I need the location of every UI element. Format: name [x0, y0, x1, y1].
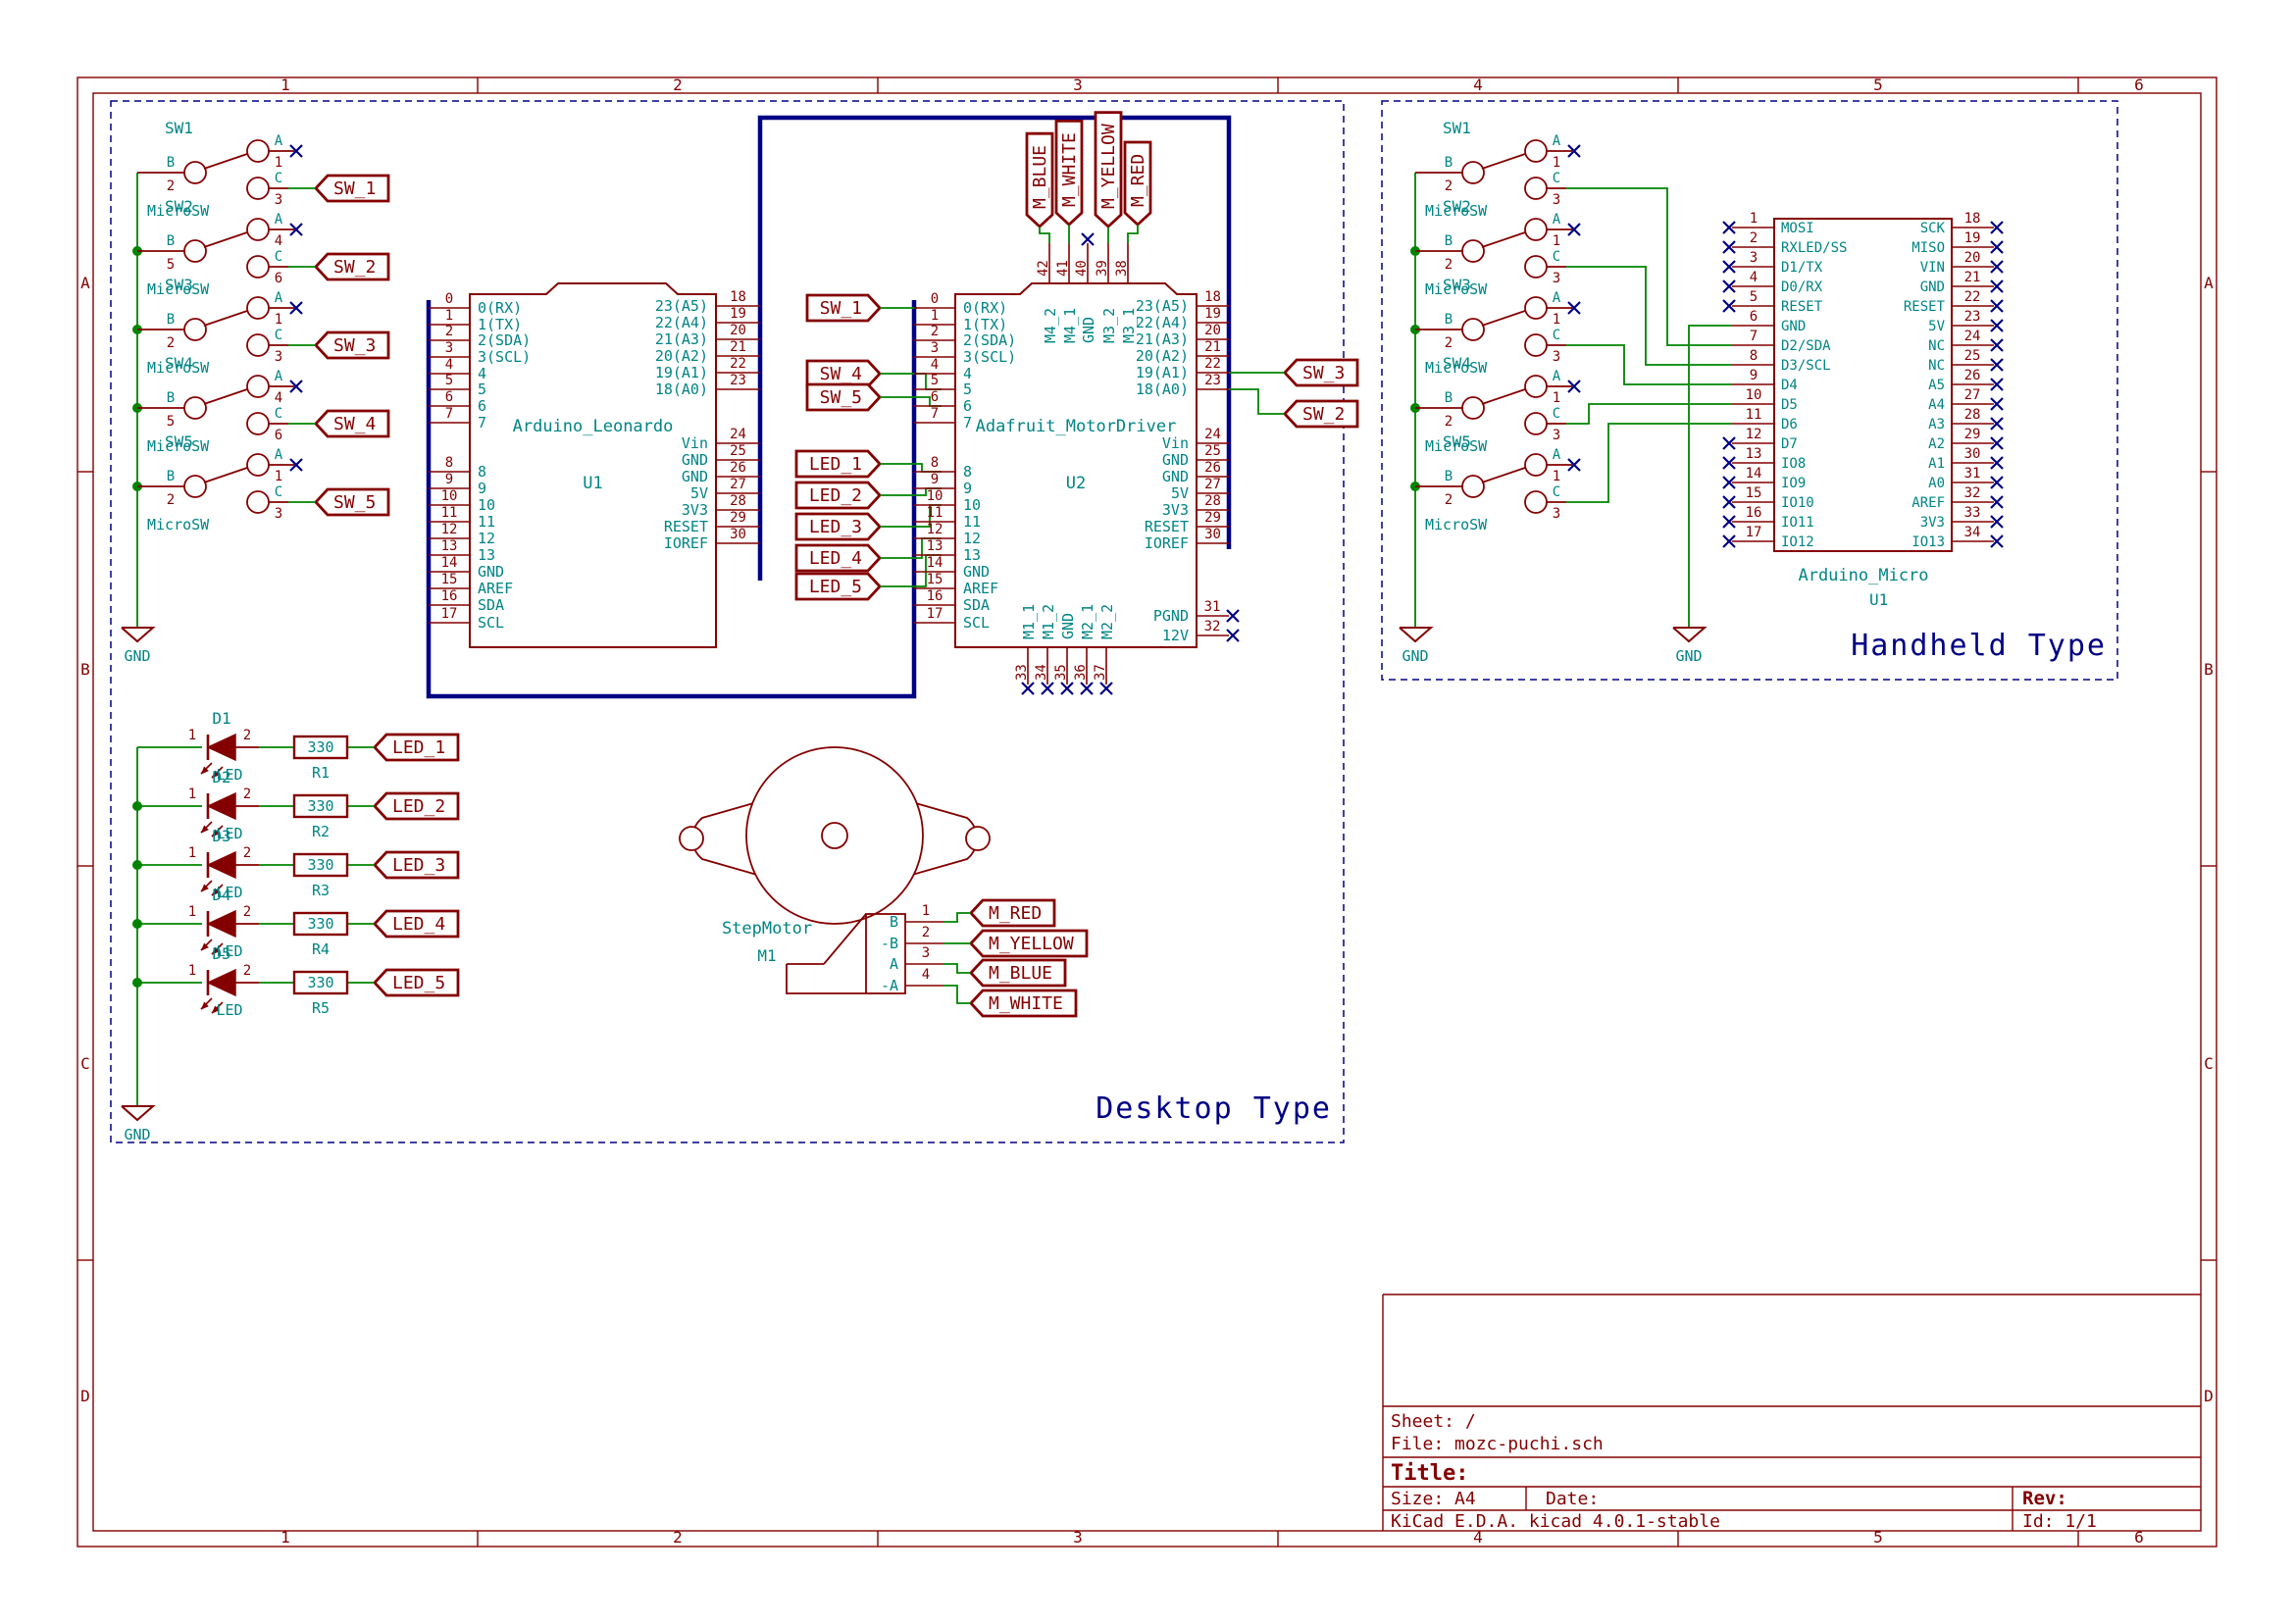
pin-number: 22 — [1964, 289, 1981, 305]
pin-name: 5V — [1171, 484, 1189, 502]
pin-name: 7 — [478, 414, 486, 431]
schematic-sheet: 112233445566AABBCCDD Sheet: / File: mozc… — [0, 0, 2294, 1624]
pin-name: IO11 — [1781, 515, 1814, 531]
pin-number: 10 — [1746, 387, 1762, 403]
switch-pin-letter: B — [167, 312, 175, 328]
pin-number: 17 — [1746, 525, 1762, 540]
pin-name: 5 — [478, 381, 486, 398]
global-label-led[interactable]: LED_4 — [375, 911, 458, 937]
global-label-led[interactable]: LED_5 — [375, 970, 458, 995]
gnd-label: GND — [124, 647, 150, 665]
switch-pin-number: 2 — [1445, 257, 1453, 273]
pin-number: 31 — [1964, 466, 1981, 482]
switch-pin-number: 1 — [1553, 390, 1560, 406]
global-label-text: LED_4 — [392, 914, 445, 935]
pin-name: 10 — [478, 496, 495, 514]
pin-number: 12 — [441, 522, 458, 537]
pin-number: 2 — [931, 324, 939, 339]
global-label-sw[interactable]: SW_5 — [316, 489, 388, 515]
pin-name: SDA — [963, 596, 990, 614]
pin-name: A — [890, 955, 898, 973]
switch-contact — [1525, 140, 1547, 162]
switch-pin-number: 1 — [1553, 155, 1560, 171]
global-label-text: SW_3 — [1302, 363, 1345, 383]
switch-ref: SW4 — [165, 354, 193, 373]
pin-number: 7 — [1750, 329, 1758, 344]
global-label[interactable]: M_BLUE — [1027, 133, 1052, 227]
global-label-text: LED_5 — [392, 973, 445, 993]
pin-name: 18(A0) — [1136, 381, 1189, 398]
pin-number: 23 — [1204, 373, 1221, 388]
switch-pin-letter: A — [275, 212, 283, 228]
pin-number: 23 — [1964, 309, 1981, 325]
switch-pin-number: 3 — [1553, 192, 1560, 208]
switch-pin-number: 3 — [1553, 506, 1560, 522]
switch-ref: SW4 — [1443, 354, 1471, 373]
led-ref: D5 — [212, 944, 230, 963]
pin-name: M3_2 — [1100, 308, 1118, 343]
pin-number: 26 — [1964, 368, 1981, 383]
led-ref: D2 — [212, 768, 230, 787]
pin-number: 33 — [1014, 664, 1030, 681]
pin-name: 20(A2) — [1136, 347, 1189, 365]
switch-ref: SW1 — [1443, 119, 1471, 137]
switch-pin-number: 6 — [275, 271, 282, 286]
switch-contact — [1525, 297, 1547, 319]
pin-name: 5 — [963, 381, 972, 398]
switch-ref: SW2 — [1443, 197, 1471, 216]
pin-name: 7 — [963, 414, 972, 431]
pin-number: 6 — [1750, 309, 1758, 325]
pin-number: 28 — [730, 493, 746, 509]
resistor-ref: R1 — [312, 764, 330, 782]
pin-number: 34 — [1034, 664, 1049, 681]
pin-name: 3V3 — [1162, 501, 1189, 519]
pin-name: 23(A5) — [1136, 297, 1189, 315]
pin-name: 22(A4) — [655, 314, 708, 331]
pin-number: 9 — [931, 472, 939, 487]
pin-name: Vin — [682, 434, 708, 452]
pin-number: 5 — [1750, 289, 1758, 305]
pin-name: M1_1 — [1020, 604, 1038, 639]
switch-contact — [247, 297, 269, 319]
frame-col-label: 5 — [1873, 1528, 1883, 1547]
pin-name: NC — [1928, 338, 1945, 354]
global-label[interactable]: LED_4 — [796, 545, 880, 571]
global-label[interactable]: SW_5 — [807, 384, 880, 410]
pin-number: 7 — [445, 406, 453, 422]
global-label-led[interactable]: LED_2 — [375, 793, 458, 819]
switch-pin-letter: B — [167, 469, 175, 484]
chip-name: StepMotor — [722, 919, 812, 939]
switch-pin-letter: A — [275, 290, 283, 306]
pin-number: 40 — [1074, 260, 1090, 277]
pin-number: 42 — [1036, 260, 1051, 277]
global-label-sw[interactable]: SW_3 — [316, 332, 388, 358]
led-pin-number: 2 — [243, 787, 251, 802]
pin-name: M2_1 — [1079, 604, 1096, 639]
pin-name: GND — [963, 563, 990, 581]
pin-number: 24 — [1964, 329, 1981, 344]
pin-number: 12 — [1746, 427, 1762, 442]
switch-contact — [247, 491, 269, 513]
pin-number: 0 — [931, 291, 939, 307]
pin-name: RXLED/SS — [1781, 240, 1847, 256]
switch-contact — [184, 240, 206, 262]
switch-pin-letter: C — [1553, 171, 1560, 186]
switch-pin-letter: B — [1445, 469, 1453, 484]
pin-name: M4_2 — [1042, 308, 1059, 343]
global-label-sw[interactable]: SW_2 — [316, 254, 388, 279]
pin-name: M2_2 — [1098, 604, 1116, 639]
switch-contact — [1525, 178, 1547, 199]
switch-contact — [247, 454, 269, 476]
global-label[interactable]: SW_2 — [1285, 401, 1357, 427]
global-label[interactable]: M_WHITE — [971, 990, 1076, 1016]
pin-name: 19(A1) — [1136, 364, 1189, 381]
gnd-label: GND — [1402, 647, 1428, 665]
pin-number: 31 — [1204, 599, 1221, 615]
switch-contact — [1462, 162, 1484, 183]
switch-pin-number: 2 — [167, 492, 175, 508]
section-handheld-label: Handheld Type — [1851, 629, 2107, 663]
switch-ref: SW5 — [165, 432, 193, 451]
pin-number: 34 — [1964, 525, 1981, 540]
pin-number: 1 — [445, 308, 453, 324]
global-label-sw[interactable]: SW_4 — [316, 411, 388, 436]
pin-name: A5 — [1928, 378, 1945, 393]
pin-number: 9 — [445, 472, 453, 487]
global-label-text: LED_3 — [809, 517, 862, 537]
pin-name: D7 — [1781, 436, 1798, 452]
pin-name: PGND — [1153, 607, 1189, 625]
pin-number: 29 — [730, 510, 746, 526]
switch-contact — [1525, 219, 1547, 240]
switch-value: MicroSW — [147, 516, 210, 533]
pin-name: GND — [478, 563, 504, 581]
pin-name: 20(A2) — [655, 347, 708, 365]
pin-name: IO10 — [1781, 495, 1814, 511]
chip-name: Adafruit_MotorDriver — [976, 417, 1177, 436]
switch-ref: SW5 — [1443, 432, 1471, 451]
pin-number: 9 — [1750, 368, 1758, 383]
switch-pin-number: 1 — [1553, 469, 1560, 484]
global-label[interactable]: SW_1 — [807, 295, 880, 321]
pin-number: 3 — [1750, 250, 1758, 266]
resistor-value: 330 — [307, 974, 333, 991]
frame-row-label: A — [80, 274, 90, 292]
chip-name: Arduino_Micro — [1798, 566, 1928, 585]
switch-pin-letter: A — [1553, 133, 1561, 149]
pin-name: 0(RX) — [478, 299, 522, 317]
frame-row-label: A — [2204, 274, 2214, 292]
switch-contact — [247, 256, 269, 278]
pin-name: 9 — [478, 480, 486, 497]
global-label-sw[interactable]: SW_1 — [316, 176, 388, 201]
global-label-led[interactable]: LED_1 — [375, 735, 458, 760]
frame-col-label: 1 — [280, 76, 290, 94]
pin-name: 0(RX) — [963, 299, 1007, 317]
frame-col-label: 2 — [673, 76, 683, 94]
switch-contact — [247, 178, 269, 199]
pin-name: RESET — [1781, 299, 1823, 315]
pin-number: 21 — [1964, 270, 1981, 285]
pin-name: SDA — [478, 596, 504, 614]
pin-number: 8 — [1750, 348, 1758, 364]
led-ref: D4 — [212, 886, 230, 904]
pin-name: 8 — [963, 463, 972, 481]
global-label[interactable]: LED_5 — [796, 574, 880, 599]
switch-pin-letter: B — [167, 155, 175, 171]
switch-contact — [247, 413, 269, 434]
pin-number: 19 — [1964, 230, 1981, 246]
pin-number: 25 — [1204, 443, 1221, 459]
pin-number: 4 — [1750, 270, 1758, 285]
pin-name: SCL — [963, 614, 990, 632]
pin-name: A2 — [1928, 436, 1945, 452]
pin-number: 2 — [445, 324, 453, 339]
led-pin-number: 1 — [188, 904, 196, 920]
pin-name: 9 — [963, 480, 972, 497]
switch-ref: SW2 — [165, 197, 193, 216]
global-label-text: LED_3 — [392, 855, 445, 876]
switch-pin-letter: C — [275, 249, 282, 265]
pin-number: 33 — [1964, 505, 1981, 521]
global-label-text: M_BLUE — [1030, 145, 1050, 209]
switch-contact — [1525, 376, 1547, 397]
switch-contact — [1525, 334, 1547, 356]
switch-contact — [1525, 413, 1547, 434]
pin-name: A0 — [1928, 476, 1945, 491]
pin-name: 21(A3) — [655, 330, 708, 348]
switch-pin-letter: C — [1553, 328, 1560, 343]
pin-name: GND — [1080, 317, 1097, 343]
pin-name: 10 — [963, 496, 981, 514]
led-pin-number: 2 — [243, 963, 251, 979]
frame-row-label: D — [2204, 1387, 2214, 1405]
global-label-text: SW_5 — [333, 492, 376, 513]
pin-number: 38 — [1114, 260, 1130, 277]
global-label-text: M_WHITE — [1059, 132, 1080, 207]
global-label[interactable]: M_RED — [971, 900, 1054, 926]
pin-name: A4 — [1928, 397, 1945, 413]
global-label-text: SW_5 — [820, 387, 862, 408]
global-label[interactable]: M_YELLOW — [971, 931, 1087, 956]
pin-name: 6 — [478, 397, 486, 415]
switch-pin-number: 6 — [275, 428, 282, 443]
pin-name: A3 — [1928, 417, 1945, 432]
pin-number: 26 — [1204, 460, 1221, 476]
switch-contact — [1462, 319, 1484, 340]
pin-number: 29 — [1964, 427, 1981, 442]
pin-name: IO9 — [1781, 476, 1806, 491]
frame-row-label: D — [80, 1387, 90, 1405]
switch-contact — [247, 219, 269, 240]
pin-number: 14 — [927, 555, 943, 571]
pin-name: M4_1 — [1061, 308, 1079, 343]
global-label[interactable]: M_WHITE — [1056, 121, 1082, 225]
titleblock-id: Id: 1/1 — [2022, 1511, 2097, 1532]
global-label[interactable]: M_YELLOW — [1096, 113, 1121, 227]
pin-number: 8 — [931, 455, 939, 471]
global-label-text: SW_2 — [1302, 404, 1345, 425]
global-label-text: SW_4 — [820, 364, 862, 384]
switch-pin-letter: C — [1553, 484, 1560, 500]
global-label-text: M_YELLOW — [1098, 124, 1119, 209]
switch-pin-number: 1 — [275, 155, 282, 171]
pin-name: 5V — [1928, 319, 1945, 334]
global-label[interactable]: M_BLUE — [971, 960, 1065, 986]
switch-pin-letter: A — [275, 447, 283, 463]
pin-name: 21(A3) — [1136, 330, 1189, 348]
pin-number: 16 — [927, 588, 943, 604]
switch-pin-number: 1 — [275, 469, 282, 484]
pin-number: 5 — [931, 373, 939, 388]
global-label[interactable]: M_RED — [1125, 142, 1150, 225]
global-label-text: M_RED — [1128, 154, 1148, 207]
pin-number: 2 — [1750, 230, 1758, 246]
led-pin-number: 1 — [188, 787, 196, 802]
pin-number: 21 — [730, 339, 746, 355]
led-value: LED — [216, 1001, 242, 1019]
pin-number: 27 — [730, 477, 746, 492]
pin-name: GND — [1781, 319, 1806, 334]
pin-name: AREF — [478, 580, 513, 597]
pin-name: 12V — [1162, 627, 1189, 644]
switch-pin-letter: B — [1445, 390, 1453, 406]
pin-number: 6 — [931, 389, 939, 405]
pin-name: A1 — [1928, 456, 1945, 472]
switch-pin-letter: C — [1553, 249, 1560, 265]
switch-pin-number: 3 — [1553, 428, 1560, 443]
pin-name: SCL — [478, 614, 504, 632]
switch-pin-number: 2 — [1445, 414, 1453, 430]
resistor-ref: R4 — [312, 940, 330, 958]
pin-number: 30 — [1964, 446, 1981, 462]
switch-contact — [1525, 256, 1547, 278]
switch-pin-number: 1 — [1553, 233, 1560, 249]
switch-pin-number: 2 — [1445, 335, 1453, 351]
pin-name: AREF — [1912, 495, 1945, 511]
switch-pin-letter: A — [275, 133, 283, 149]
pin-name: D4 — [1781, 378, 1798, 393]
switch-contact — [247, 140, 269, 162]
pin-name: 12 — [963, 530, 981, 547]
led-pin-number: 2 — [243, 728, 251, 743]
frame-row-label: B — [80, 660, 90, 679]
pin-number: 14 — [1746, 466, 1762, 482]
pin-name: 11 — [963, 513, 981, 531]
chip-ref: M1 — [757, 946, 776, 965]
pin-number: 25 — [730, 443, 746, 459]
pin-name: 5V — [690, 484, 708, 502]
pin-number: 3 — [922, 945, 930, 961]
switch-pin-number: 2 — [1445, 492, 1453, 508]
pin-number: 25 — [1964, 348, 1981, 364]
frame-row-label: C — [80, 1054, 90, 1073]
pin-number: 28 — [1204, 493, 1221, 509]
switch-pin-number: 2 — [167, 335, 175, 351]
switch-pin-letter: B — [1445, 233, 1453, 249]
global-label[interactable]: LED_3 — [796, 514, 880, 539]
pin-number: 15 — [441, 572, 458, 587]
global-label[interactable]: LED_2 — [796, 482, 880, 508]
frame-row-label: C — [2204, 1054, 2214, 1073]
pin-number: 8 — [445, 455, 453, 471]
pin-name: 22(A4) — [1136, 314, 1189, 331]
pin-number: 19 — [1204, 306, 1221, 322]
resistor-ref: R5 — [312, 999, 330, 1017]
switch-pin-number: 2 — [1445, 178, 1453, 194]
switch-contact — [184, 397, 206, 419]
resistor-ref: R2 — [312, 823, 330, 840]
gnd-label: GND — [124, 1126, 150, 1143]
switch-contact — [1525, 454, 1547, 476]
switch-contact — [1462, 240, 1484, 262]
global-label-led[interactable]: LED_3 — [375, 852, 458, 878]
switch-pin-letter: C — [1553, 406, 1560, 422]
global-label-text: LED_2 — [392, 796, 445, 817]
pin-number: 16 — [441, 588, 458, 604]
pin-number: 30 — [1204, 527, 1221, 542]
pin-name: RESET — [1904, 299, 1946, 315]
pin-number: 29 — [1204, 510, 1221, 526]
pin-number: 39 — [1095, 260, 1110, 277]
switch-contact — [184, 476, 206, 497]
pin-name: IO12 — [1781, 534, 1814, 550]
frame-col-label: 3 — [1073, 1528, 1083, 1547]
pin-name: GND — [1162, 451, 1189, 469]
pin-number: 1 — [1750, 211, 1758, 227]
pin-name: 12 — [478, 530, 495, 547]
global-label-text: M_YELLOW — [989, 934, 1074, 954]
switch-pin-number: 3 — [1553, 349, 1560, 365]
pin-number: 18 — [730, 289, 746, 305]
pin-name: M1_2 — [1040, 604, 1057, 639]
switch-pin-number: 3 — [1553, 271, 1560, 286]
titleblock-date: Date: — [1546, 1489, 1599, 1509]
switch-pin-number: 3 — [275, 506, 282, 522]
frame-col-label: 4 — [1473, 76, 1483, 94]
global-label[interactable]: SW_3 — [1285, 360, 1357, 385]
global-label-text: LED_2 — [809, 485, 862, 506]
pin-number: 4 — [445, 357, 453, 373]
pin-name: 13 — [963, 546, 981, 564]
resistor-value: 330 — [307, 856, 333, 874]
global-label[interactable]: LED_1 — [796, 451, 880, 477]
pin-number: 35 — [1053, 664, 1069, 681]
pin-number: 15 — [1746, 485, 1762, 501]
switch-contact — [1525, 491, 1547, 513]
global-label[interactable]: SW_4 — [807, 361, 880, 386]
motor-mount-hole — [966, 827, 990, 850]
global-label-text: LED_5 — [809, 577, 862, 597]
pin-number: 10 — [927, 488, 943, 504]
pin-name: -B — [881, 935, 898, 952]
global-label-text: LED_1 — [809, 454, 862, 475]
global-label-text: M_BLUE — [989, 963, 1052, 984]
pin-number: 27 — [1204, 477, 1221, 492]
frame-col-label: 2 — [673, 1528, 683, 1547]
pin-name: 3V3 — [1920, 515, 1945, 531]
switch-contact — [247, 334, 269, 356]
pin-name: B — [890, 913, 898, 931]
pin-number: 22 — [730, 356, 746, 372]
switch-pin-letter: B — [1445, 312, 1453, 328]
frame-col-label: 1 — [280, 1528, 290, 1547]
pin-name: AREF — [963, 580, 998, 597]
switch-pin-letter: C — [275, 171, 282, 186]
